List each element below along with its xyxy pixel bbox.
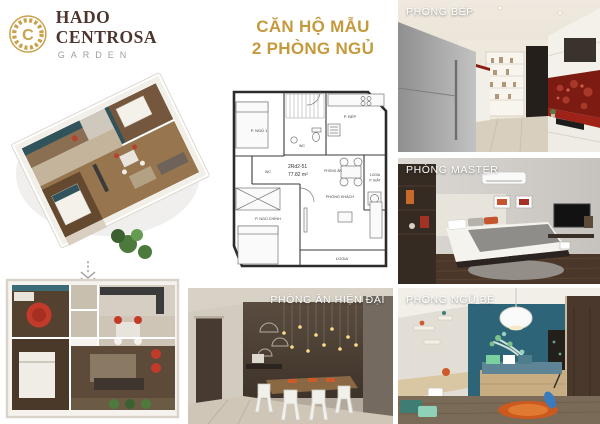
- plan-label-bedroom1: P. NGỦ 1: [251, 128, 268, 133]
- photo-kitchen: PHÒNG BẾP: [398, 0, 600, 152]
- brand-subtitle: GARDEN: [56, 50, 208, 60]
- plan-label-logia-laundry-1: LOGIA: [370, 173, 381, 177]
- brand-logo: C HADO CENTROSA GARDEN: [8, 6, 208, 62]
- plan-label-dining: PHÒNG ĂN: [324, 168, 342, 173]
- architectural-floorplan: P. NGỦ 1 WC WC P. BẾP LOGIA P. GIẶT PHÒN…: [222, 78, 394, 278]
- brand-monogram-icon: C: [8, 13, 48, 55]
- plan-label-wc1: WC: [299, 144, 305, 148]
- isometric-3d-floorplan: [0, 66, 215, 263]
- plan-unit-area: 77.82 m²: [288, 172, 308, 178]
- photo-dining-label: PHÒNG ĂN HIỆN ĐẠI: [270, 294, 385, 306]
- page-title-line1: CĂN HỘ MẪU: [228, 16, 398, 38]
- brand-name: HADO CENTROSA: [56, 8, 208, 47]
- photo-master-label: PHÒNG MASTER: [406, 164, 498, 176]
- photo-kids-label: PHÒNG NGỦ BÉ: [406, 294, 495, 306]
- plan-label-logia: LOGIA: [336, 256, 349, 261]
- page-title-line2: 2 PHÒNG NGỦ: [228, 38, 398, 60]
- topdown-3d-floorplan: [4, 276, 182, 422]
- page-title: CĂN HỘ MẪU 2 PHÒNG NGỦ: [228, 16, 398, 60]
- plan-label-wc2: WC: [265, 170, 271, 174]
- photo-master-bedroom: PHÒNG MASTER: [398, 158, 600, 284]
- plan-label-kitchen: P. BẾP: [344, 114, 357, 119]
- photo-dining-room: PHÒNG ĂN HIỆN ĐẠI: [188, 288, 393, 424]
- plan-label-logia-laundry-2: P. GIẶT: [369, 179, 381, 183]
- plan-label-living: PHÒNG KHÁCH: [326, 194, 355, 199]
- balcony-plants: [111, 229, 152, 259]
- photo-kitchen-label: PHÒNG BẾP: [406, 6, 474, 18]
- plan-unit-code: 2Rd2-51: [288, 164, 307, 170]
- brochure-page: C HADO CENTROSA GARDEN CĂN HỘ MẪU 2 PHÒN…: [0, 0, 600, 424]
- plan-label-master: P. NGỦ CHÍNH: [255, 216, 281, 221]
- photo-kids-bedroom: PHÒNG NGỦ BÉ: [398, 288, 600, 424]
- brand-monogram-letter: C: [22, 26, 34, 44]
